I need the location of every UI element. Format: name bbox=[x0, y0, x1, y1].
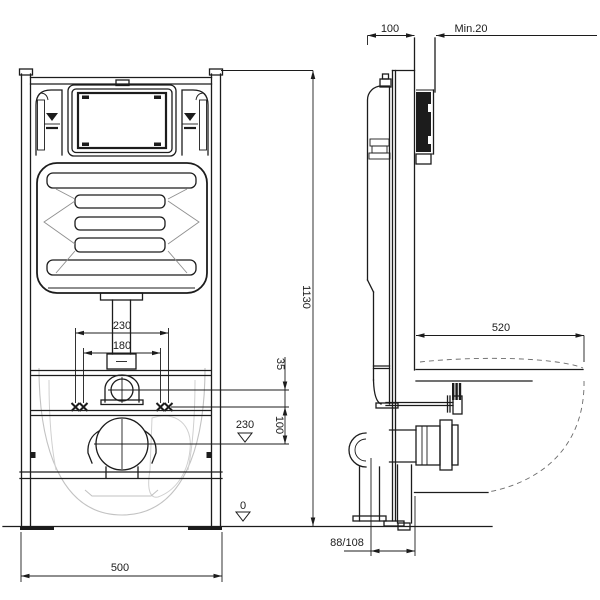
dim-frame-depth-label: 100 bbox=[381, 23, 399, 35]
outlet-assembly bbox=[349, 420, 458, 530]
side-cistern-profile bbox=[368, 74, 399, 408]
dim-frame-width-label: 500 bbox=[111, 562, 129, 574]
water-level-icon bbox=[44, 113, 60, 128]
dim-fixing-to-outlet-label: 100 bbox=[273, 416, 285, 434]
side-view bbox=[349, 38, 584, 530]
drawing-svg: 100 Min.20 1130 520 2 bbox=[0, 0, 600, 600]
floor-datum: 0 bbox=[236, 500, 250, 521]
front-view bbox=[20, 69, 223, 530]
dimensions: 100 Min.20 1130 520 2 bbox=[21, 23, 597, 582]
dim-floor-level-label: 0 bbox=[240, 500, 246, 512]
dim-pan-depth-label: 520 bbox=[492, 322, 510, 334]
wall-and-flush-plate bbox=[415, 38, 436, 370]
dim-fixing-inner-label: 180 bbox=[113, 340, 131, 352]
flush-plate-window bbox=[68, 80, 176, 156]
dim-min-cover: Min.20 bbox=[436, 23, 597, 38]
dim-pan-depth: 520 bbox=[416, 322, 584, 362]
dim-min-cover-label: Min.20 bbox=[454, 23, 487, 35]
technical-drawing-canvas: 100 Min.20 1130 520 2 bbox=[0, 0, 600, 600]
dim-fixing-outer-label: 230 bbox=[113, 320, 131, 332]
dim-outlet-height-label: 230 bbox=[236, 419, 254, 431]
dim-fixing-inner: 180 bbox=[84, 340, 161, 355]
outlet-connection bbox=[88, 418, 156, 478]
dim-frame-width: 500 bbox=[21, 532, 222, 582]
dim-frame-depth: 100 bbox=[368, 23, 415, 45]
fixing-mark-left bbox=[31, 452, 36, 458]
dim-frame-height: 1130 bbox=[221, 71, 315, 527]
outlet-socket bbox=[416, 426, 440, 465]
cistern-tank bbox=[37, 163, 207, 293]
dim-frame-height-label: 1130 bbox=[300, 285, 312, 309]
dim-fixing-outer: 230 bbox=[76, 320, 169, 335]
water-level-icon bbox=[182, 113, 198, 128]
bracket-left bbox=[36, 90, 62, 155]
dim-supply-to-fixing-label: 35 bbox=[274, 358, 286, 370]
dim-outlet-offset-label: 88/108 bbox=[330, 537, 364, 549]
pan-fixing-hardware bbox=[386, 370, 583, 415]
dim-outlet-offset: 88/108 bbox=[330, 458, 415, 556]
fixing-mark-right bbox=[207, 452, 212, 458]
bracket-right bbox=[182, 90, 208, 155]
outlet-height-datum: 230 bbox=[236, 419, 254, 442]
